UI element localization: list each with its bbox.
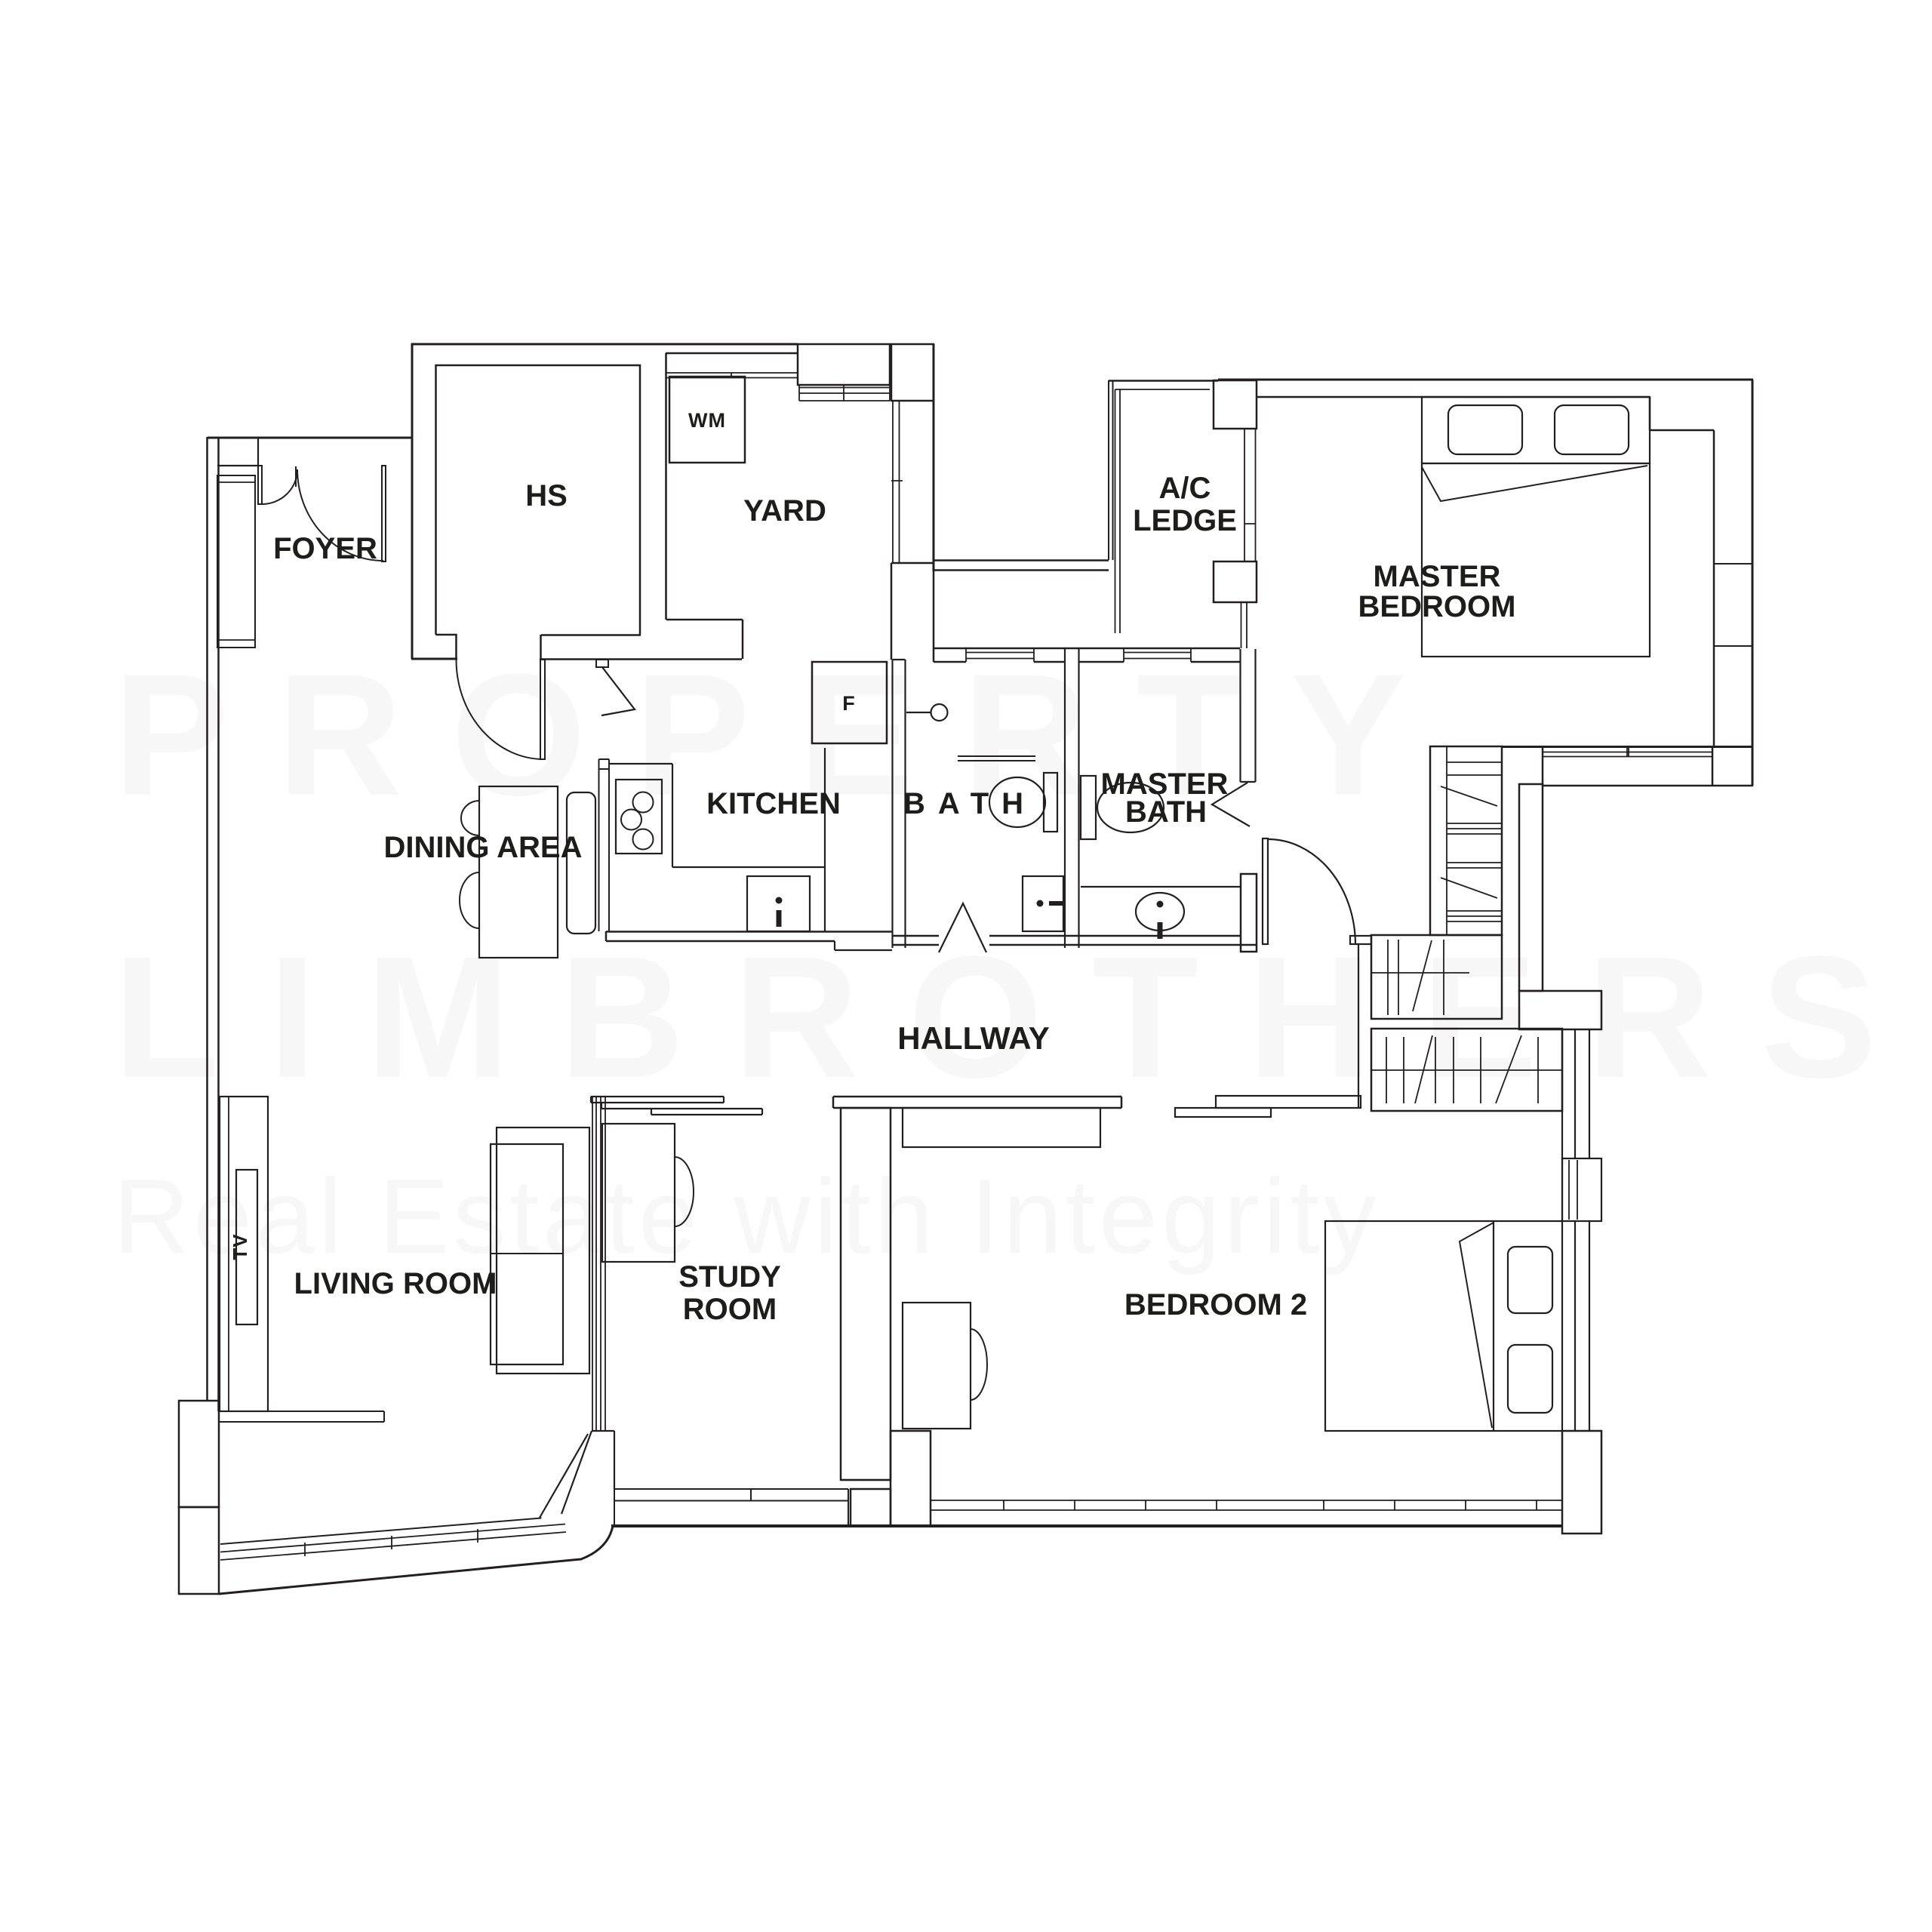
svg-text:BEDROOM: BEDROOM: [1358, 590, 1516, 623]
svg-text:YARD: YARD: [743, 494, 826, 528]
svg-text:DINING AREA: DINING AREA: [384, 831, 583, 864]
svg-text:A/C: A/C: [1159, 472, 1211, 505]
svg-text:TV: TV: [229, 1233, 251, 1260]
svg-text:Real Estate with Integrity: Real Estate with Integrity: [113, 1157, 1380, 1275]
svg-text:F: F: [842, 692, 856, 715]
svg-text:KITCHEN: KITCHEN: [706, 787, 841, 820]
svg-text:BATH: BATH: [903, 787, 1036, 820]
svg-text:ROOM: ROOM: [683, 1293, 777, 1326]
svg-text:BATH: BATH: [1125, 795, 1207, 829]
svg-text:HALLWAY: HALLWAY: [897, 1020, 1049, 1056]
svg-text:MASTER: MASTER: [1374, 560, 1501, 593]
svg-text:BEDROOM 2: BEDROOM 2: [1124, 1288, 1307, 1321]
svg-text:FOYER: FOYER: [273, 532, 377, 565]
svg-text:LEDGE: LEDGE: [1133, 504, 1237, 537]
svg-text:HS: HS: [525, 479, 568, 512]
svg-text:STUDY: STUDY: [678, 1260, 781, 1294]
svg-text:LIVING ROOM: LIVING ROOM: [294, 1267, 497, 1300]
svg-text:LIMBROTHERS: LIMBROTHERS: [113, 920, 1926, 1114]
svg-text:WM: WM: [688, 409, 726, 432]
